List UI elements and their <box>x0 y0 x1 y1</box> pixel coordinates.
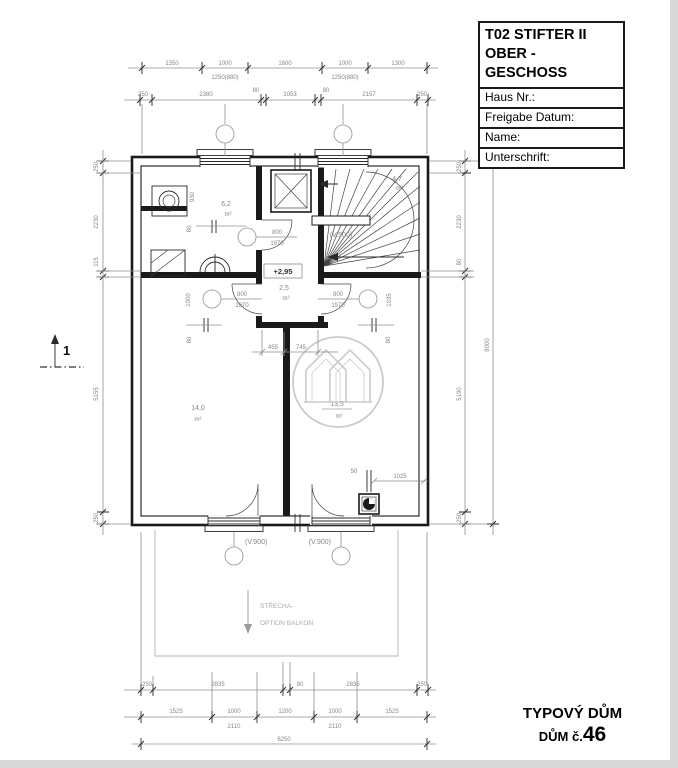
section-number: 1 <box>63 343 70 358</box>
wall-tick-marks <box>295 153 300 532</box>
field-unterschrift: Unterschrift: <box>480 147 623 167</box>
room-unit-left: m² <box>195 417 202 423</box>
dim-top2-1: 2380 <box>199 92 213 98</box>
dimension-chain-left: 250 2230 115 5155 250 <box>94 150 141 535</box>
dim-left-3: 5155 <box>94 387 100 401</box>
dim-bot2-sub-1: 2110 <box>329 724 343 730</box>
field-name: Name: <box>480 127 623 147</box>
footer-title: TYPOVÝ DŮM DŮM č.46 <box>500 705 645 747</box>
interior-walls <box>141 166 421 516</box>
dim-right-total: 8000 <box>485 338 491 352</box>
dim-hall-1: 745 <box>296 345 307 351</box>
dim-right-1: 2230 <box>457 215 463 229</box>
footer-line2: DŮM č.46 <box>500 723 645 747</box>
dim-left-0: 250 <box>94 161 100 172</box>
dim-top1-1: 1000 <box>218 61 232 67</box>
dim-bot1-4: 250 <box>417 682 428 688</box>
dim-top2-5: 2157 <box>362 92 376 98</box>
drawing-title-line2: OBER - GESCHOSS <box>485 45 618 83</box>
roof-label-2: OPTION BALKON <box>260 620 313 627</box>
dim-top1-0: 1350 <box>165 61 179 67</box>
dim-top1-2: 1600 <box>278 61 292 67</box>
room-unit-hall: m² <box>283 296 290 302</box>
door-bath-height: 1970 <box>270 241 284 247</box>
dim-bath-1: 80 <box>187 225 193 232</box>
drawing-title: T02 STIFTER II OBER - GESCHOSS <box>480 23 623 87</box>
dim-bot2-2: 1200 <box>278 709 292 715</box>
level-label: +2,95 <box>274 267 293 276</box>
window-right-label: (V.900) <box>309 539 331 546</box>
roof-label-1: STŘECHA- <box>260 601 293 610</box>
balcony-outline: STŘECHA- OPTION BALKON <box>155 530 398 656</box>
room-unit-right: m² <box>336 414 343 420</box>
footer-line1: TYPOVÝ DŮM <box>500 705 645 722</box>
dim-top2-4: 80 <box>323 88 330 94</box>
room-area-stairs: 4,7 <box>392 176 402 183</box>
dim-right-2: 80 <box>457 258 463 265</box>
section-marker: 1 <box>40 334 84 367</box>
field-freigabe-datum: Freigabe Datum: <box>480 107 623 127</box>
roof-arrow-icon <box>244 624 252 634</box>
dim-bot2-1: 1000 <box>227 709 241 715</box>
dim-left-4: 250 <box>94 512 100 523</box>
field-haus-nr: Haus Nr.: <box>480 87 623 107</box>
room-area-left: 14,0 <box>191 405 205 412</box>
footer-line2-prefix: DŮM č. <box>539 729 583 744</box>
page-edge-bottom <box>0 760 678 768</box>
shaft-box <box>271 170 311 212</box>
dim-left-2: 115 <box>94 257 100 267</box>
room-area-bathroom: 6,2 <box>221 201 231 208</box>
dim-left-1: 2230 <box>94 215 100 229</box>
dim-bot1-0: 250 <box>142 682 153 688</box>
dim-bot1-1: 2835 <box>211 682 225 688</box>
dim-bot-total: 6250 <box>277 737 291 743</box>
dimension-chain-right: 250 2230 80 5190 250 8000 <box>421 150 499 535</box>
staircase: (V.900) 4,7 m² <box>312 169 420 268</box>
dim-top1-3: 1000 <box>338 61 352 67</box>
dim-top1-4: 1300 <box>391 61 405 67</box>
dim-top1-sub-0: 1250(880) <box>211 75 238 81</box>
door-left-width: 800 <box>237 292 248 298</box>
room-area-hall: 2,5 <box>279 285 289 292</box>
stair-handrail <box>312 216 370 225</box>
dim-bot2-0: 1525 <box>169 709 183 715</box>
dim-room-right-0: 1035 <box>387 293 393 307</box>
dim-chimney-0: 50 <box>351 469 358 475</box>
title-block: T02 STIFTER II OBER - GESCHOSS Haus Nr.:… <box>478 21 625 169</box>
dim-right-4: 250 <box>457 512 463 523</box>
door-right-height: 1970 <box>331 303 345 309</box>
dim-bot2-3: 1000 <box>328 709 342 715</box>
floorplan-page: (V.900) 4,7 m² (V.900) (V.900) 800 <box>0 0 678 768</box>
dim-top2-6: 250 <box>417 92 428 98</box>
page-edge-right <box>670 0 678 768</box>
dim-top2-2: 80 <box>253 88 260 94</box>
window-left-label: (V.900) <box>245 539 267 546</box>
dim-bath-0: 930 <box>190 191 196 202</box>
door-left-height: 1970 <box>235 303 249 309</box>
dim-room-right-1: 80 <box>386 336 392 343</box>
window-marker-bottom-right <box>332 547 350 565</box>
dim-top1-sub-1: 1250(880) <box>331 75 358 81</box>
footer-house-number: 46 <box>583 723 606 746</box>
chimney: 50 1025 <box>351 469 428 514</box>
door-bath-width: 800 <box>272 230 283 236</box>
dim-hall-0: 455 <box>268 345 279 351</box>
drawing-title-line1: T02 STIFTER II <box>485 26 618 45</box>
window-marker-bottom-left <box>225 547 243 565</box>
dim-top2-0: 250 <box>138 92 149 98</box>
dim-right-0: 250 <box>457 161 463 172</box>
dim-right-3: 5190 <box>457 387 463 401</box>
window-marker-top-left <box>216 125 234 143</box>
dim-bot1-2: 80 <box>297 682 304 688</box>
dim-bot2-sub-0: 2110 <box>228 724 242 730</box>
dim-chimney-1: 1025 <box>393 474 407 480</box>
stair-parapet-label: (V.900) <box>330 232 352 239</box>
dim-room-left-0: 1000 <box>186 293 192 307</box>
dim-bot2-4: 1525 <box>385 709 399 715</box>
dim-top2-3: 1053 <box>283 92 297 98</box>
dimension-chain-top: 1350 1000 1600 1000 1300 1250(880) 1250(… <box>124 61 438 154</box>
room-unit-stairs: m² <box>396 186 403 192</box>
room-unit-bathroom: m² <box>225 212 232 218</box>
door-right-width: 800 <box>333 292 344 298</box>
dim-room-left-1: 80 <box>187 336 193 343</box>
window-marker-top-right <box>334 125 352 143</box>
dim-bot1-3: 2835 <box>346 682 360 688</box>
section-arrow-icon <box>51 334 59 344</box>
dimension-chain-bottom: 250 2835 80 2835 250 1525 1000 1200 1000… <box>124 532 436 750</box>
